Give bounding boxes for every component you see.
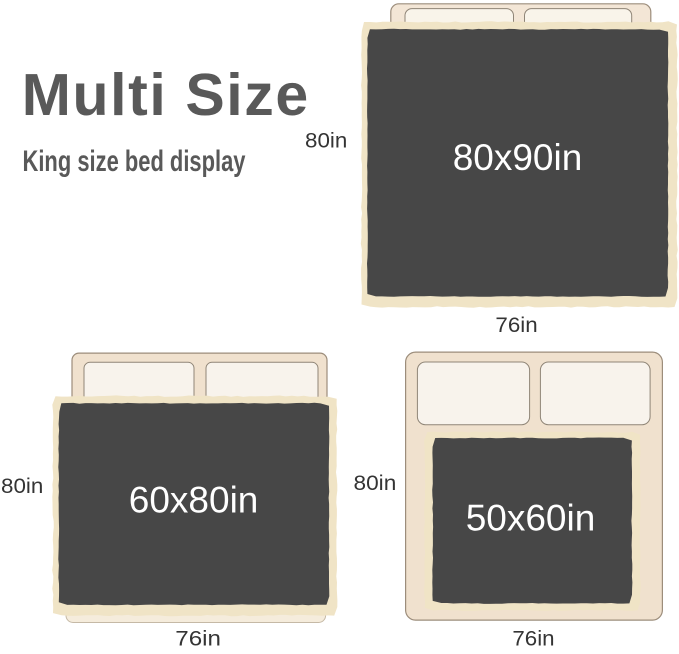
svg-text:76in: 76in xyxy=(512,626,554,649)
svg-text:Multi Size: Multi Size xyxy=(22,62,309,128)
svg-text:50x60in: 50x60in xyxy=(466,498,596,539)
svg-text:80in: 80in xyxy=(354,471,397,495)
svg-text:76in: 76in xyxy=(175,626,221,649)
svg-text:80in: 80in xyxy=(305,129,347,153)
svg-text:60x80in: 60x80in xyxy=(129,480,259,521)
svg-text:76in: 76in xyxy=(495,313,537,337)
svg-text:80x90in: 80x90in xyxy=(453,137,583,178)
svg-text:80in: 80in xyxy=(1,474,43,498)
svg-text:King size bed display: King size bed display xyxy=(23,145,246,178)
